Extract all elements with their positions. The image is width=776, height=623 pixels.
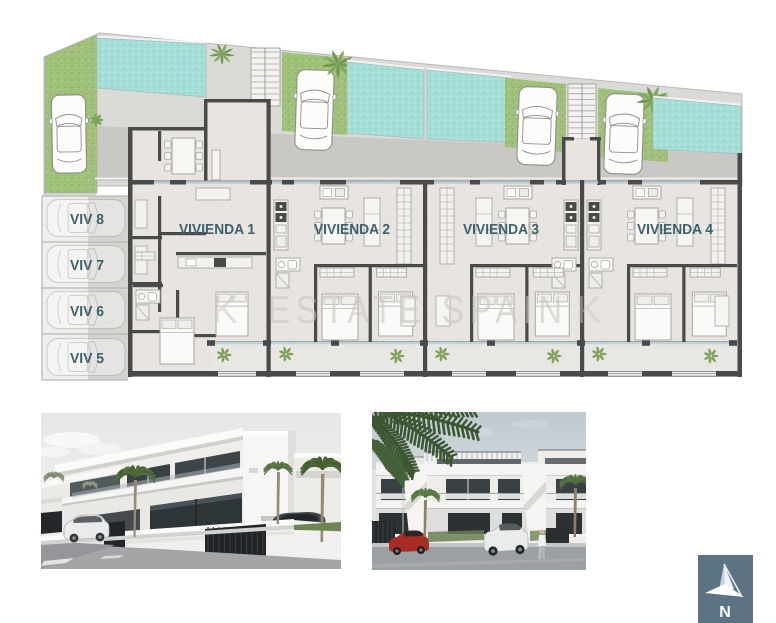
svg-text:VIVIENDA 2: VIVIENDA 2 <box>314 222 390 238</box>
svg-text:ESTATE SPAIN: ESTATE SPAIN <box>268 289 568 332</box>
svg-text:VIVIENDA 3: VIVIENDA 3 <box>463 222 539 238</box>
svg-text:VIVIENDA 4: VIVIENDA 4 <box>637 222 713 238</box>
svg-text:VIV 8: VIV 8 <box>70 212 104 228</box>
svg-text:K: K <box>212 289 238 332</box>
svg-text:K: K <box>576 289 602 332</box>
svg-text:VIV 7: VIV 7 <box>70 258 104 274</box>
svg-text:N: N <box>719 604 731 621</box>
svg-text:VIV 6: VIV 6 <box>70 304 104 320</box>
svg-text:VIVIENDA 1: VIVIENDA 1 <box>179 222 255 238</box>
svg-text:VIV 5: VIV 5 <box>70 351 104 367</box>
